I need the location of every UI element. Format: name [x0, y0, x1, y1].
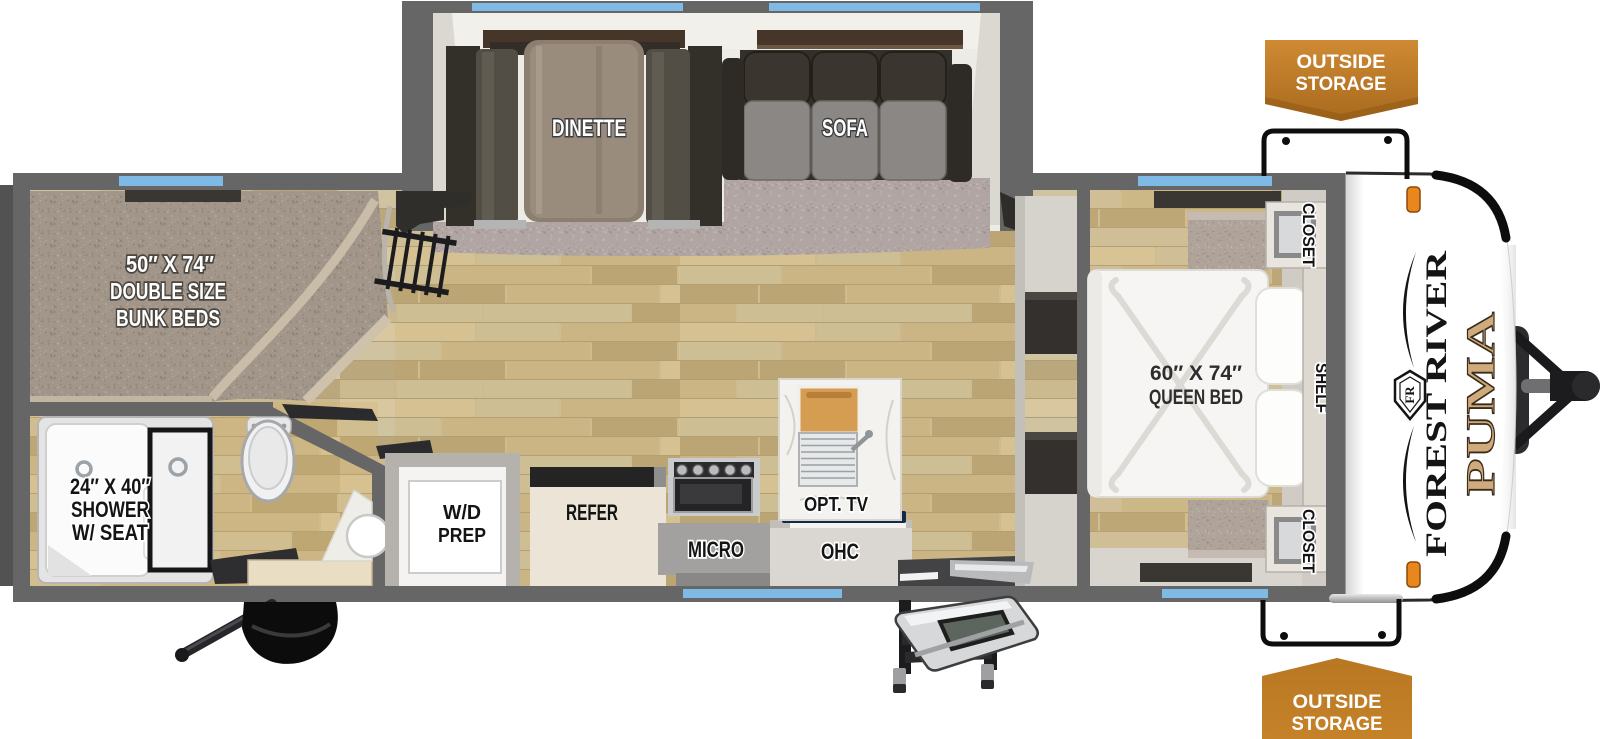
- svg-text:STORAGE: STORAGE: [1296, 73, 1387, 95]
- svg-text:OPT. TV: OPT. TV: [804, 494, 869, 516]
- svg-text:QUEEN BED: QUEEN BED: [1149, 386, 1243, 409]
- svg-text:OUTSIDE: OUTSIDE: [1297, 51, 1386, 73]
- svg-text:24″ X 40″: 24″ X 40″: [70, 474, 150, 499]
- svg-text:60″ X 74″: 60″ X 74″: [1150, 362, 1242, 385]
- svg-text:OUTSIDE: OUTSIDE: [1293, 691, 1382, 713]
- svg-text:FR: FR: [1402, 386, 1417, 404]
- svg-text:DINETTE: DINETTE: [552, 115, 626, 142]
- svg-text:DOUBLE SIZE: DOUBLE SIZE: [110, 278, 226, 304]
- svg-text:STORAGE: STORAGE: [1292, 713, 1383, 735]
- svg-text:PREP: PREP: [438, 525, 486, 547]
- svg-text:SOFA: SOFA: [822, 115, 868, 142]
- svg-text:CLOSET: CLOSET: [1299, 203, 1318, 268]
- svg-text:W/D: W/D: [443, 502, 481, 524]
- svg-text:PUMA: PUMA: [1458, 312, 1503, 496]
- svg-text:OHC: OHC: [821, 539, 859, 564]
- svg-text:BUNK BEDS: BUNK BEDS: [116, 305, 220, 331]
- svg-text:SHOWER: SHOWER: [71, 497, 149, 522]
- svg-text:50″ X 74″: 50″ X 74″: [126, 251, 214, 277]
- svg-text:MICRO: MICRO: [688, 537, 744, 562]
- svg-text:W/ SEAT: W/ SEAT: [72, 520, 148, 545]
- svg-text:CLOSET: CLOSET: [1299, 509, 1318, 574]
- svg-text:FOREST RIVER: FOREST RIVER: [1420, 251, 1453, 557]
- svg-text:REFER: REFER: [566, 500, 618, 525]
